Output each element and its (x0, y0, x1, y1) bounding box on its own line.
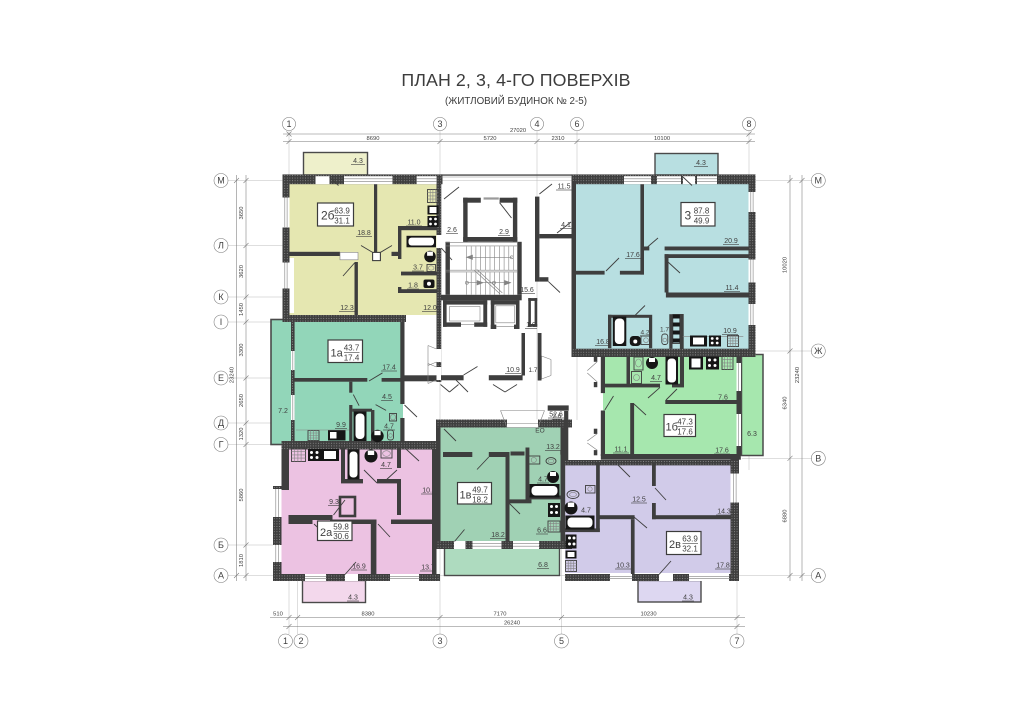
svg-text:49.7: 49.7 (472, 486, 488, 495)
svg-text:1в: 1в (460, 490, 472, 502)
svg-text:510: 510 (273, 612, 283, 618)
svg-text:5: 5 (559, 636, 564, 646)
svg-text:В: В (815, 453, 821, 463)
svg-text:27020: 27020 (510, 128, 526, 134)
svg-text:1.7: 1.7 (528, 367, 537, 374)
svg-text:2310: 2310 (552, 136, 565, 142)
svg-text:17.6: 17.6 (715, 448, 729, 455)
svg-text:11.5: 11.5 (557, 184, 570, 191)
svg-text:М: М (815, 176, 823, 186)
svg-text:Б: Б (218, 540, 224, 550)
svg-text:15.6: 15.6 (520, 287, 534, 294)
svg-text:2а: 2а (320, 527, 333, 539)
svg-text:43.7: 43.7 (344, 344, 360, 353)
svg-text:10.9: 10.9 (506, 367, 520, 374)
svg-text:1: 1 (286, 119, 291, 129)
svg-text:4.5: 4.5 (382, 394, 392, 401)
svg-text:2.6: 2.6 (447, 227, 457, 234)
svg-text:10.9: 10.9 (422, 488, 436, 495)
svg-text:63.9: 63.9 (334, 207, 350, 216)
svg-text:4.3: 4.3 (348, 595, 358, 602)
svg-text:63.9: 63.9 (682, 535, 698, 544)
svg-text:6.3: 6.3 (747, 431, 757, 438)
svg-text:4.7: 4.7 (538, 477, 548, 484)
svg-text:14.3: 14.3 (717, 509, 731, 516)
svg-text:6.8: 6.8 (538, 562, 548, 569)
svg-text:4.7: 4.7 (384, 424, 394, 431)
svg-text:4.7: 4.7 (381, 462, 391, 469)
svg-text:11.1: 11.1 (614, 447, 627, 454)
svg-text:13.7: 13.7 (421, 565, 435, 572)
svg-text:2650: 2650 (239, 394, 245, 407)
svg-text:6: 6 (574, 119, 579, 129)
svg-text:Г: Г (219, 440, 224, 450)
svg-text:1б: 1б (666, 422, 678, 434)
svg-text:17.4: 17.4 (382, 365, 396, 372)
svg-text:1810: 1810 (239, 554, 245, 567)
svg-text:4.3: 4.3 (696, 160, 706, 167)
svg-text:12.5: 12.5 (632, 497, 646, 504)
svg-text:11.4: 11.4 (725, 285, 738, 292)
svg-text:1.7: 1.7 (660, 327, 669, 334)
svg-text:32.1: 32.1 (682, 545, 698, 554)
svg-text:17.6: 17.6 (677, 428, 693, 437)
svg-text:16.8: 16.8 (596, 339, 610, 346)
svg-text:23240: 23240 (230, 367, 236, 383)
svg-text:А: А (815, 571, 821, 581)
svg-text:3: 3 (437, 119, 442, 129)
svg-text:10100: 10100 (654, 136, 670, 142)
svg-text:18.2: 18.2 (472, 496, 488, 505)
svg-text:4.7: 4.7 (581, 508, 591, 515)
svg-text:26240: 26240 (504, 621, 520, 627)
svg-text:(ЖИТЛОВИЙ БУДИНОК № 2-5): (ЖИТЛОВИЙ БУДИНОК № 2-5) (445, 95, 587, 107)
svg-text:31.1: 31.1 (334, 217, 350, 226)
svg-text:Ж: Ж (814, 346, 823, 356)
svg-text:1320: 1320 (239, 428, 245, 441)
svg-text:6340: 6340 (783, 397, 789, 410)
svg-text:30.6: 30.6 (333, 532, 349, 541)
svg-text:10.9: 10.9 (723, 328, 737, 335)
svg-text:М: М (217, 176, 225, 186)
svg-text:6.6: 6.6 (537, 528, 547, 535)
svg-text:17.4: 17.4 (344, 354, 360, 363)
svg-text:7.2: 7.2 (278, 408, 288, 415)
svg-text:12.3: 12.3 (340, 305, 354, 312)
svg-text:6880: 6880 (783, 510, 789, 523)
svg-text:3300: 3300 (239, 344, 245, 357)
svg-text:ПЛАН 2, 3, 4-ГО ПОВЕРХІВ: ПЛАН 2, 3, 4-ГО ПОВЕРХІВ (401, 70, 630, 90)
svg-text:23240: 23240 (795, 367, 801, 383)
svg-text:Е: Е (218, 373, 224, 383)
svg-text:ЕО: ЕО (535, 428, 544, 435)
svg-text:1.0: 1.0 (526, 322, 536, 329)
svg-text:17.8: 17.8 (716, 563, 730, 570)
svg-text:7: 7 (734, 636, 739, 646)
svg-text:1а: 1а (331, 348, 344, 360)
svg-text:18.8: 18.8 (357, 230, 371, 237)
svg-text:16.9: 16.9 (352, 564, 366, 571)
svg-text:8380: 8380 (362, 612, 375, 618)
svg-text:4: 4 (534, 119, 539, 129)
svg-text:2в: 2в (669, 539, 681, 551)
svg-text:52.6: 52.6 (549, 412, 563, 419)
svg-text:20.9: 20.9 (724, 238, 738, 245)
svg-text:А: А (218, 571, 224, 581)
svg-text:К: К (218, 292, 224, 302)
svg-text:13.2: 13.2 (546, 444, 560, 451)
svg-text:49.9: 49.9 (694, 217, 710, 226)
svg-text:11.0: 11.0 (407, 220, 420, 227)
svg-text:7170: 7170 (494, 612, 507, 618)
svg-text:2: 2 (298, 636, 303, 646)
svg-text:3: 3 (437, 636, 442, 646)
svg-text:4.7: 4.7 (651, 375, 661, 382)
svg-text:87.8: 87.8 (694, 207, 710, 216)
svg-text:4.1: 4.1 (561, 222, 571, 229)
svg-text:3650: 3650 (239, 207, 245, 220)
svg-text:4.3: 4.3 (353, 158, 363, 165)
svg-text:9.9: 9.9 (336, 422, 346, 429)
svg-text:59.8: 59.8 (333, 523, 349, 532)
svg-text:9.3: 9.3 (329, 499, 339, 506)
svg-text:2б: 2б (321, 209, 335, 223)
svg-text:5860: 5860 (239, 489, 245, 502)
svg-text:3620: 3620 (239, 265, 245, 278)
svg-text:1450: 1450 (239, 303, 245, 316)
svg-text:І: І (220, 317, 223, 327)
svg-text:4.2: 4.2 (640, 330, 649, 337)
svg-text:Л: Л (218, 241, 224, 251)
svg-text:18.2: 18.2 (491, 532, 505, 539)
svg-text:10230: 10230 (640, 612, 656, 618)
svg-text:10.3: 10.3 (616, 563, 630, 570)
svg-text:8690: 8690 (367, 136, 380, 142)
svg-text:17.6: 17.6 (626, 252, 640, 259)
svg-text:12.0: 12.0 (423, 305, 437, 312)
svg-text:7.6: 7.6 (718, 395, 728, 402)
svg-text:5720: 5720 (484, 136, 497, 142)
svg-text:2.9: 2.9 (499, 229, 509, 236)
svg-text:3: 3 (685, 209, 692, 223)
svg-text:1.8: 1.8 (408, 283, 418, 290)
svg-text:Д: Д (218, 418, 224, 428)
svg-text:4.3: 4.3 (683, 595, 693, 602)
svg-text:10020: 10020 (783, 257, 789, 273)
svg-text:8: 8 (746, 119, 751, 129)
svg-text:3.7: 3.7 (413, 265, 423, 272)
svg-text:47.3: 47.3 (677, 418, 693, 427)
svg-text:1: 1 (283, 636, 288, 646)
